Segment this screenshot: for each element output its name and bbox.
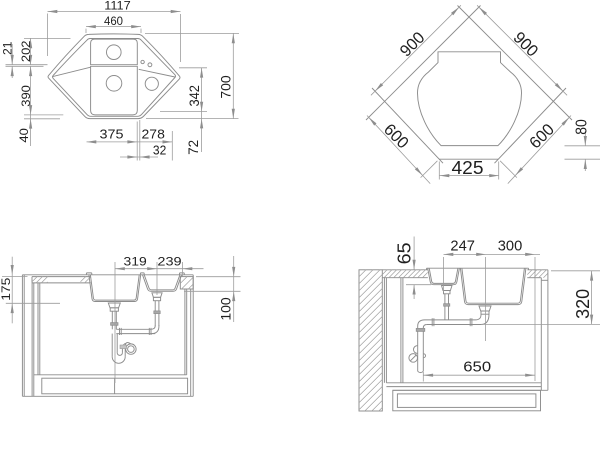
svg-text:21: 21 bbox=[1, 41, 15, 55]
svg-text:1117: 1117 bbox=[104, 0, 131, 12]
svg-text:700: 700 bbox=[218, 75, 233, 98]
svg-text:175: 175 bbox=[0, 277, 13, 301]
svg-text:319: 319 bbox=[124, 254, 147, 268]
svg-text:65: 65 bbox=[394, 242, 414, 264]
svg-text:72: 72 bbox=[186, 140, 201, 155]
svg-text:40: 40 bbox=[17, 128, 31, 143]
svg-text:32: 32 bbox=[153, 144, 166, 158]
svg-text:425: 425 bbox=[452, 158, 484, 178]
svg-text:239: 239 bbox=[157, 254, 181, 268]
svg-text:100: 100 bbox=[218, 297, 234, 321]
svg-text:650: 650 bbox=[463, 358, 491, 375]
svg-text:460: 460 bbox=[104, 14, 123, 28]
svg-text:390: 390 bbox=[19, 85, 33, 107]
svg-text:320: 320 bbox=[573, 289, 593, 319]
svg-text:375: 375 bbox=[100, 128, 124, 142]
svg-text:80: 80 bbox=[574, 119, 591, 135]
svg-text:247: 247 bbox=[450, 239, 475, 255]
svg-text:300: 300 bbox=[498, 239, 523, 255]
svg-text:202: 202 bbox=[19, 40, 33, 62]
svg-text:342: 342 bbox=[187, 85, 202, 107]
svg-text:278: 278 bbox=[142, 128, 165, 142]
